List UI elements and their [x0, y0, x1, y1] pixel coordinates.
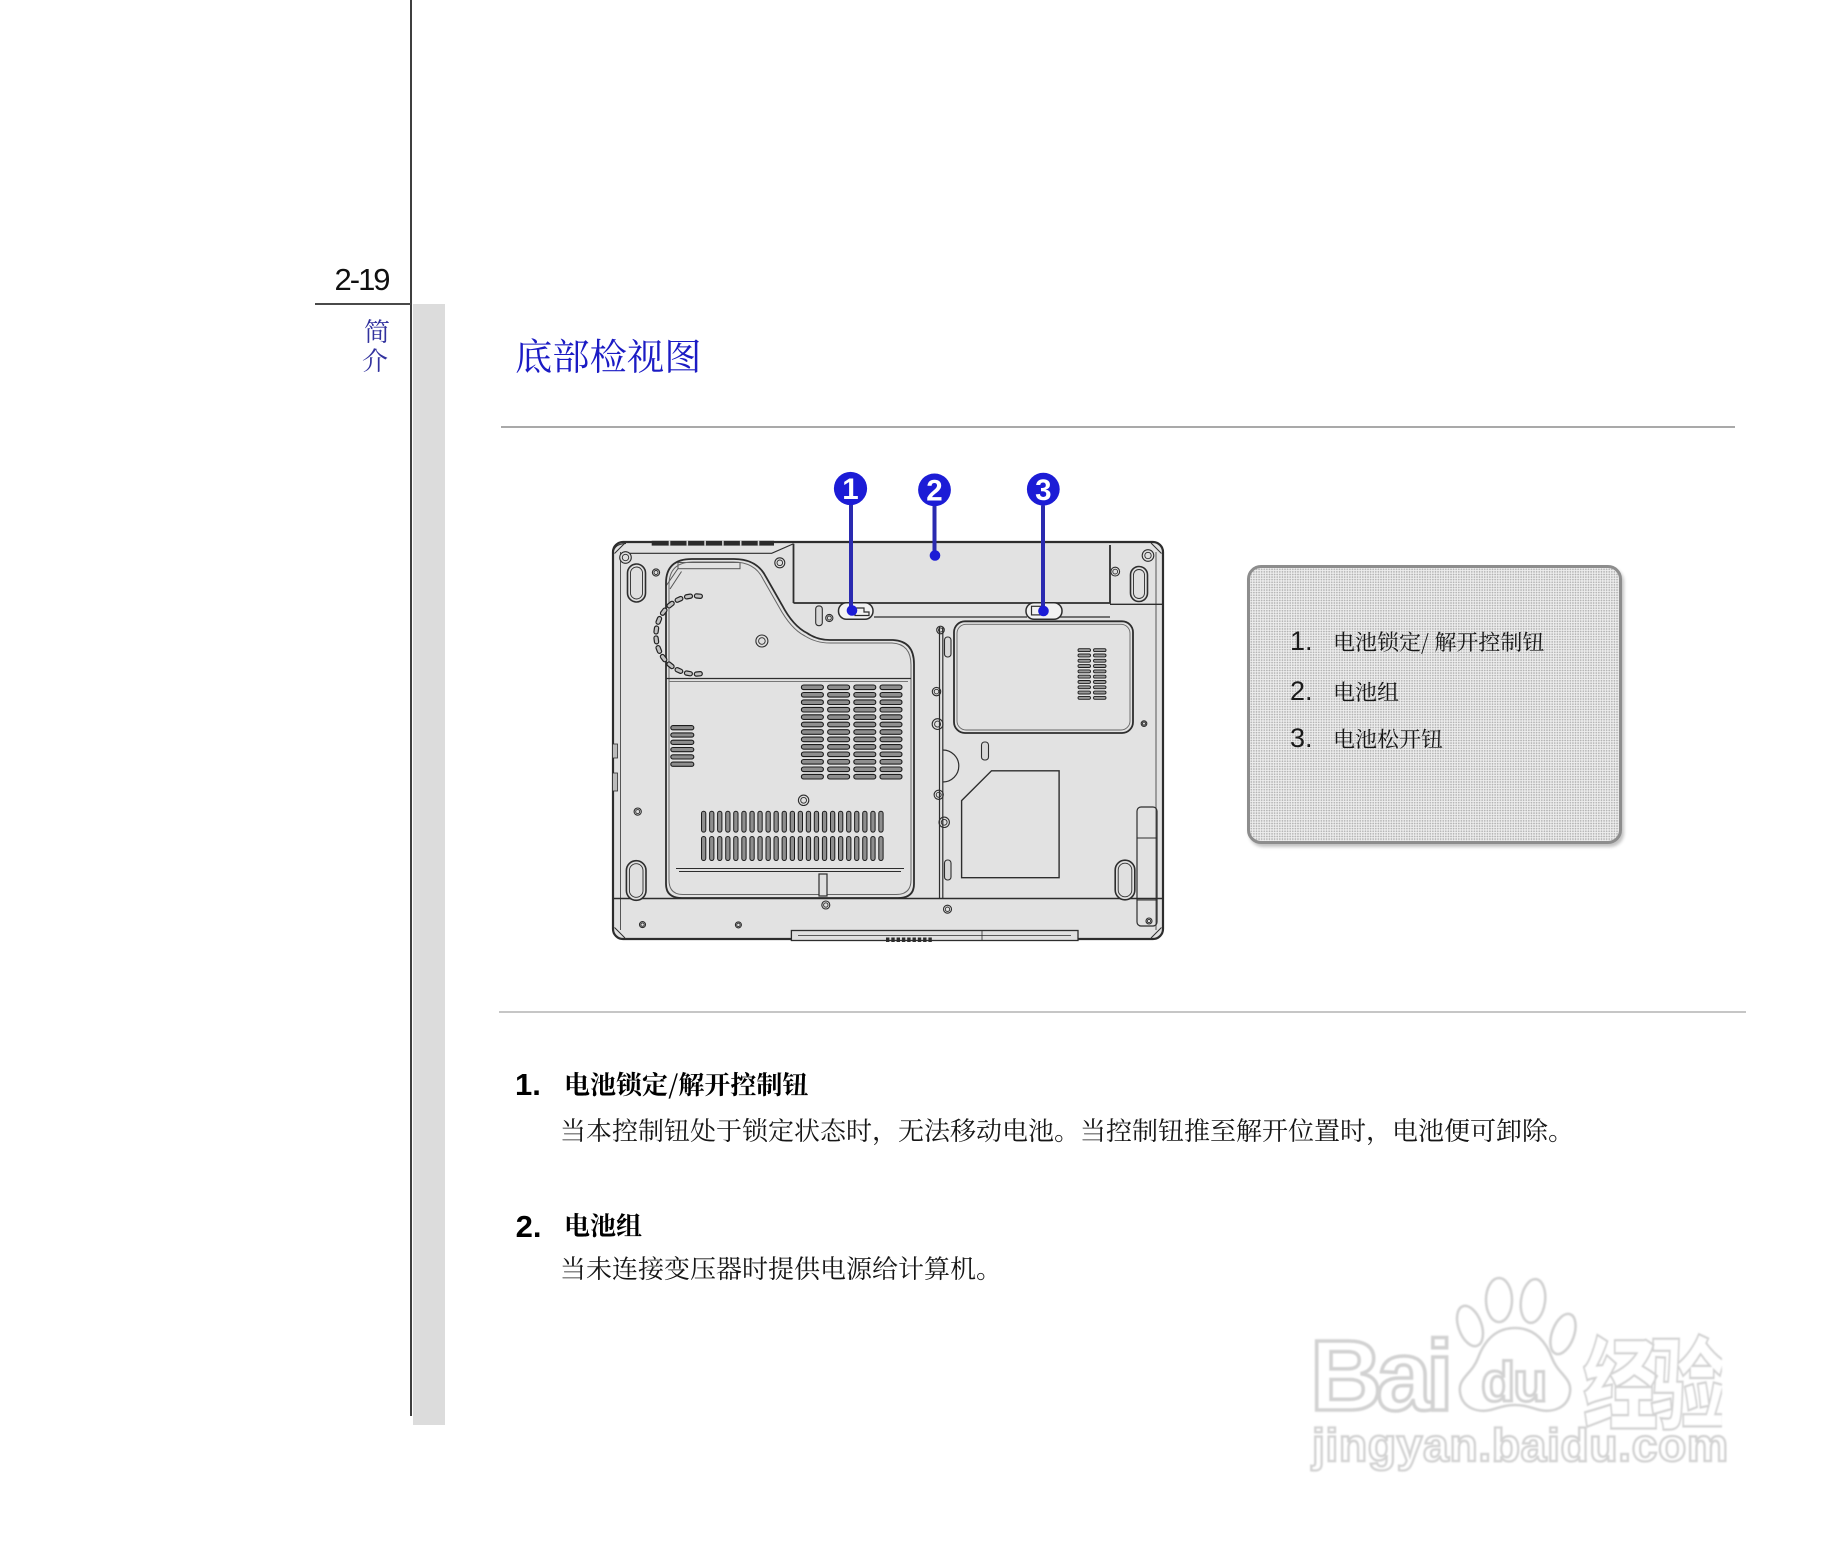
svg-text:3: 3 — [1035, 474, 1051, 507]
svg-text:1: 1 — [842, 473, 858, 506]
svg-text:2: 2 — [926, 475, 942, 508]
